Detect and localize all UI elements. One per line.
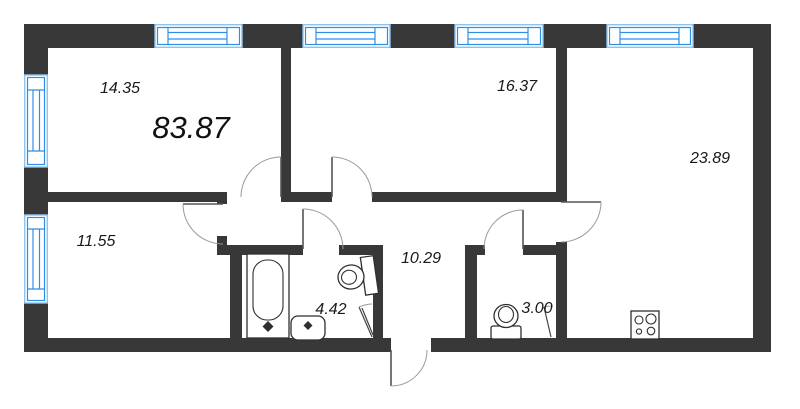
door-bathroom — [303, 209, 343, 249]
fixtures — [247, 254, 659, 340]
wall-hall-top-a — [48, 192, 227, 202]
toilet — [491, 305, 521, 340]
room-area-label-top-middle: 16.37 — [497, 78, 538, 95]
room-area-label-hallway: 10.29 — [401, 250, 441, 267]
room-area-label-bottom-left: 11.55 — [77, 233, 116, 250]
room-area-label-kitchen-living: 23.89 — [689, 150, 730, 167]
wall-wc-top-a — [465, 245, 485, 255]
wall-hall-top-cap — [217, 192, 227, 204]
exterior-walls — [24, 24, 771, 352]
wall-hall-top-c — [372, 192, 567, 202]
wall-room2-kitchen — [556, 48, 567, 202]
wall-wc-top-b — [523, 245, 567, 255]
floor-plan: 14.35 83.87 16.37 23.89 11.55 10.29 4.42… — [0, 0, 800, 409]
windows — [25, 25, 693, 303]
washbasin — [291, 316, 325, 340]
window — [303, 25, 390, 48]
wall-exterior-right — [753, 24, 771, 352]
wall-hall-wc — [465, 245, 477, 338]
door-room-top-left — [241, 157, 281, 197]
wall-exterior-bottom-left — [24, 338, 391, 352]
door-entrance — [391, 350, 427, 386]
room-area-label-wc: 3.00 — [521, 300, 552, 317]
wall-room3-bath — [230, 245, 242, 338]
room-area-label-bathroom: 4.42 — [315, 301, 346, 318]
door-leaf-bathroom-ajar — [359, 304, 373, 337]
bathtub — [247, 254, 289, 338]
window — [455, 25, 543, 48]
door-wc — [484, 210, 523, 249]
room-area-label-top-left: 14.35 — [100, 80, 140, 97]
wall-wc-kitchen — [556, 242, 567, 338]
stove — [631, 311, 659, 339]
window — [155, 25, 242, 48]
window — [25, 75, 48, 167]
floor-plan-svg: 14.35 83.87 16.37 23.89 11.55 10.29 4.42… — [0, 0, 800, 409]
washing-machine — [336, 256, 379, 299]
window — [607, 25, 693, 48]
door-kitchen-living — [561, 202, 601, 242]
window — [25, 215, 48, 303]
door-room-top-middle — [332, 157, 372, 197]
total-area-label: 83.87 — [152, 110, 231, 145]
wall-hall-top-b — [281, 192, 332, 202]
wall-exterior-bottom-right — [431, 338, 771, 352]
wall-room1-room2 — [281, 48, 291, 192]
